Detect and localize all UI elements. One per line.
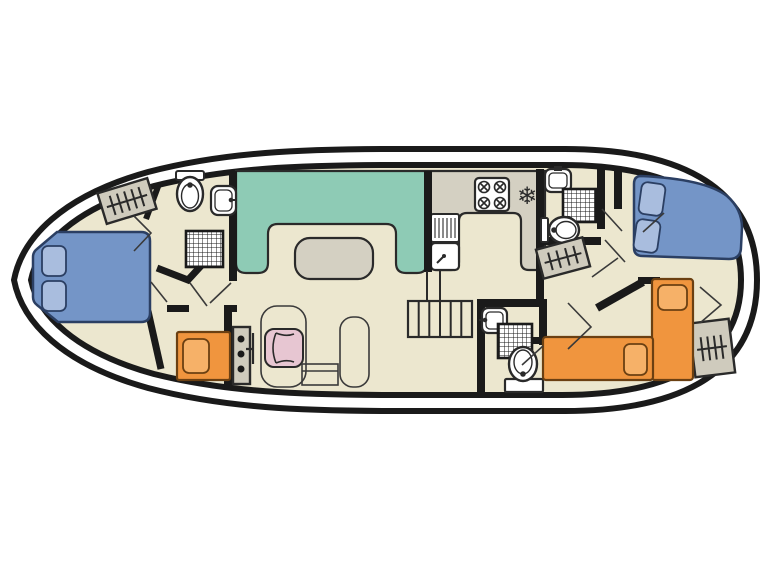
instrument-dial — [238, 336, 245, 343]
aft-deck-steps — [689, 319, 735, 377]
helm-seat — [265, 329, 303, 367]
stove-icon — [475, 178, 509, 211]
instrument-dial — [238, 366, 245, 373]
single-bed — [652, 279, 693, 380]
stern-cabin — [633, 176, 742, 259]
stern-bed-pillow — [638, 181, 666, 216]
bow-bed-pillow — [42, 281, 66, 311]
galley-sink — [431, 214, 459, 270]
shower-icon — [186, 231, 223, 267]
toilet-icon — [176, 171, 204, 211]
bow-bed-pillow — [42, 246, 66, 276]
bow-seat — [177, 332, 230, 380]
floor-plan-svg: ❄ — [0, 0, 768, 576]
single-bed — [543, 337, 653, 380]
washbasin-icon — [211, 186, 236, 215]
instrument-dial — [238, 351, 245, 358]
stern-bed-pillow — [633, 218, 661, 253]
dinette-table — [295, 238, 373, 279]
dinette — [236, 171, 427, 279]
refrigerator-snowflake-icon: ❄ — [517, 182, 537, 210]
boat-floor-plan: ❄ — [0, 0, 768, 576]
